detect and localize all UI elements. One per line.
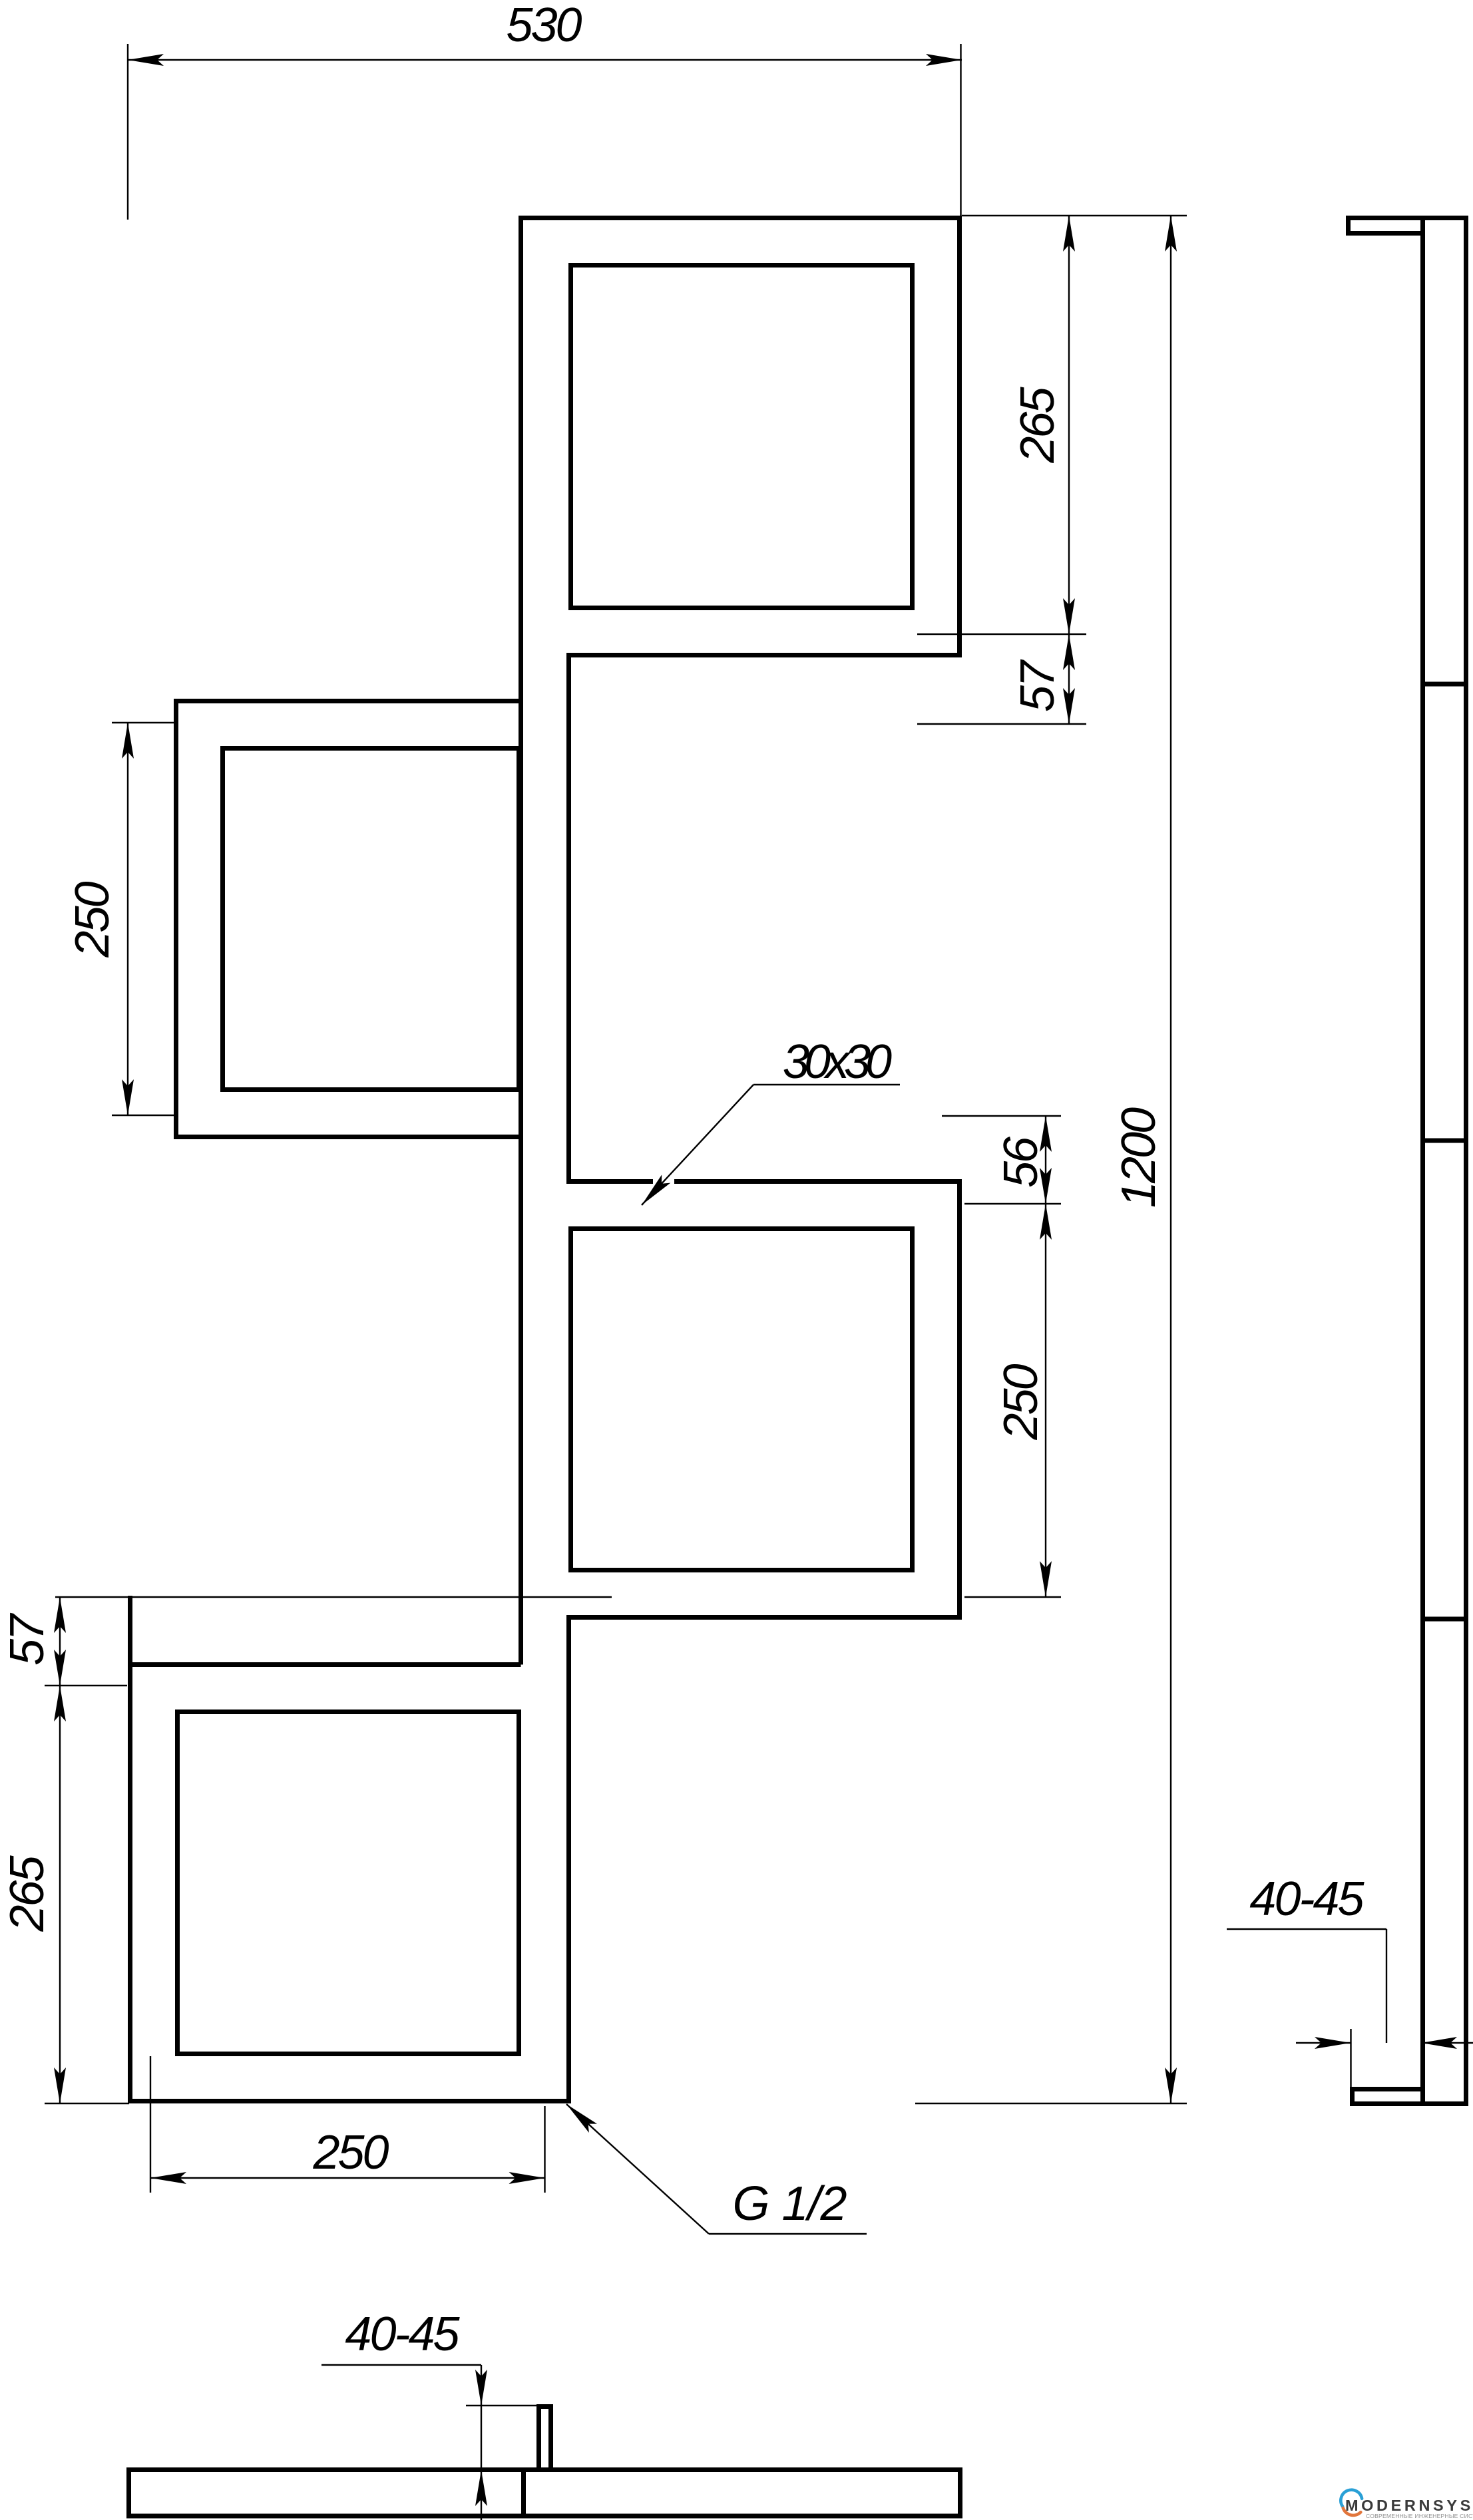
- svg-text:250: 250: [66, 881, 119, 958]
- svg-text:40-45: 40-45: [345, 2308, 460, 2361]
- svg-text:265: 265: [1011, 386, 1064, 463]
- svg-text:250: 250: [994, 1363, 1048, 1440]
- svg-text:57: 57: [1, 1612, 54, 1666]
- svg-text:1200: 1200: [1112, 1107, 1165, 1208]
- svg-text:57: 57: [1011, 659, 1064, 712]
- svg-text:56: 56: [994, 1136, 1048, 1188]
- svg-text:MODERNSYS: MODERNSYS: [1345, 2497, 1473, 2514]
- svg-text:265: 265: [1, 1855, 54, 1932]
- svg-text:40-45: 40-45: [1249, 1873, 1365, 1926]
- svg-text:СОВРЕМЕННЫЕ ИНЖЕНЕРНЫЕ СИСТЕМЫ: СОВРЕМЕННЫЕ ИНЖЕНЕРНЫЕ СИСТЕМЫ: [1366, 2513, 1473, 2519]
- svg-text:530: 530: [506, 0, 582, 52]
- svg-text:250: 250: [312, 2126, 389, 2179]
- svg-text:G 1/2: G 1/2: [732, 2177, 846, 2231]
- svg-text:30x30: 30x30: [783, 1035, 892, 1089]
